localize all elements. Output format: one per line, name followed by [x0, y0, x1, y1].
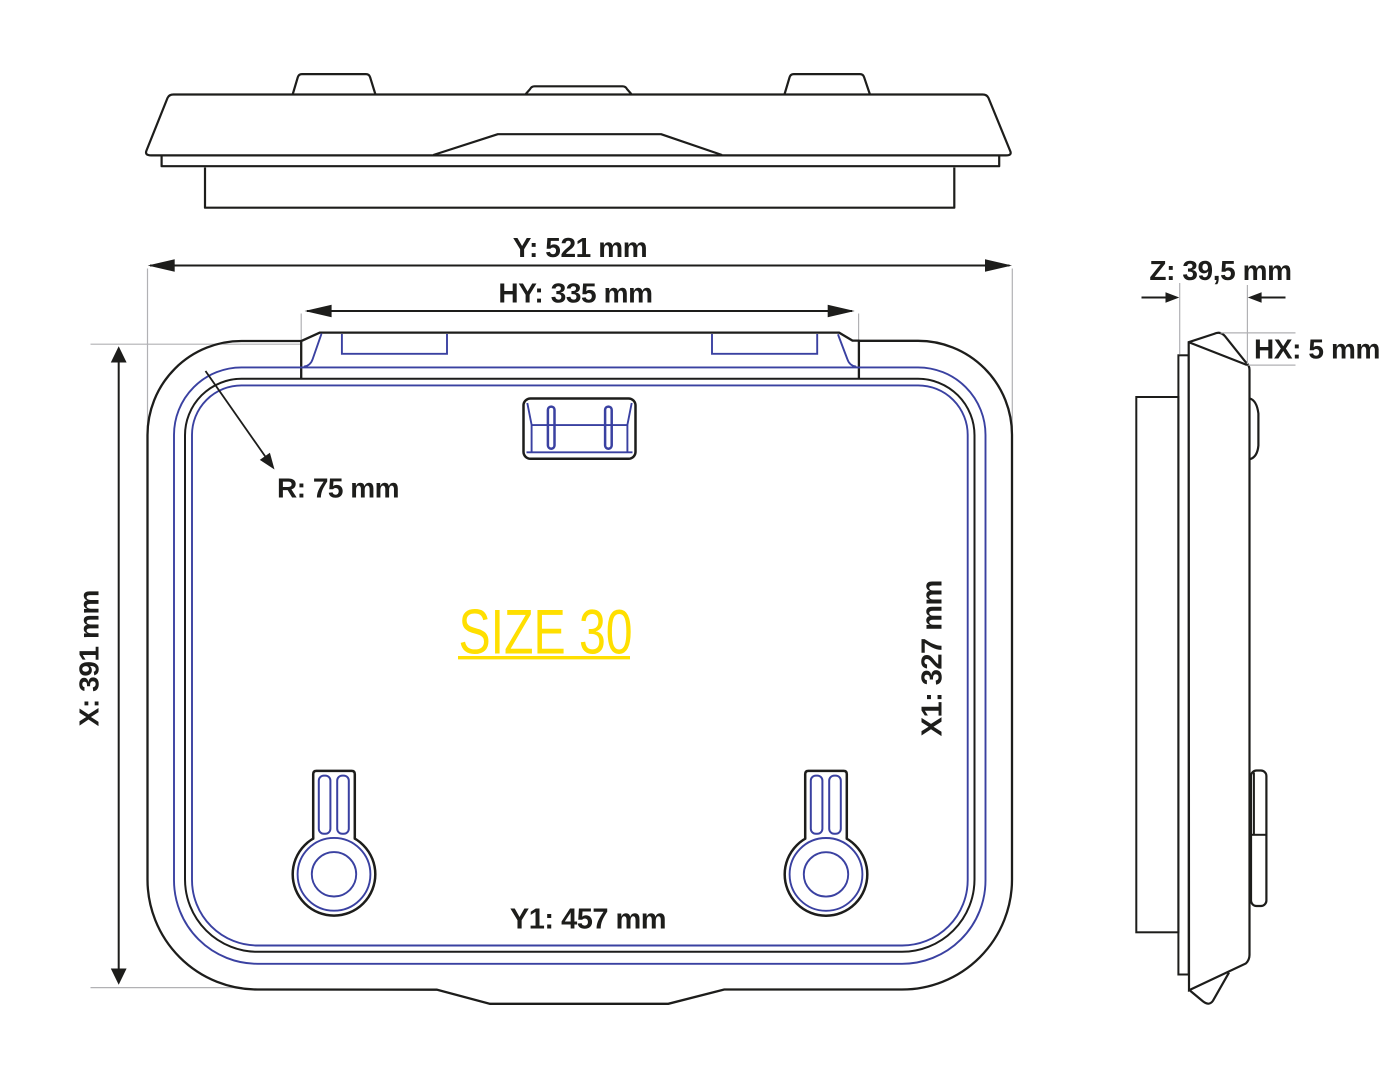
- svg-text:Y: 521 mm: Y: 521 mm: [513, 232, 647, 263]
- svg-text:R: 75 mm: R: 75 mm: [277, 473, 399, 504]
- svg-text:Z: 39,5 mm: Z: 39,5 mm: [1149, 255, 1291, 286]
- svg-text:X: 391 mm: X: 391 mm: [74, 590, 105, 726]
- svg-text:Y1: 457 mm: Y1: 457 mm: [510, 904, 666, 936]
- svg-text:HX: 5 mm: HX: 5 mm: [1254, 333, 1380, 364]
- svg-text:HY: 335 mm: HY: 335 mm: [498, 277, 652, 308]
- svg-text:X1: 327 mm: X1: 327 mm: [917, 580, 949, 736]
